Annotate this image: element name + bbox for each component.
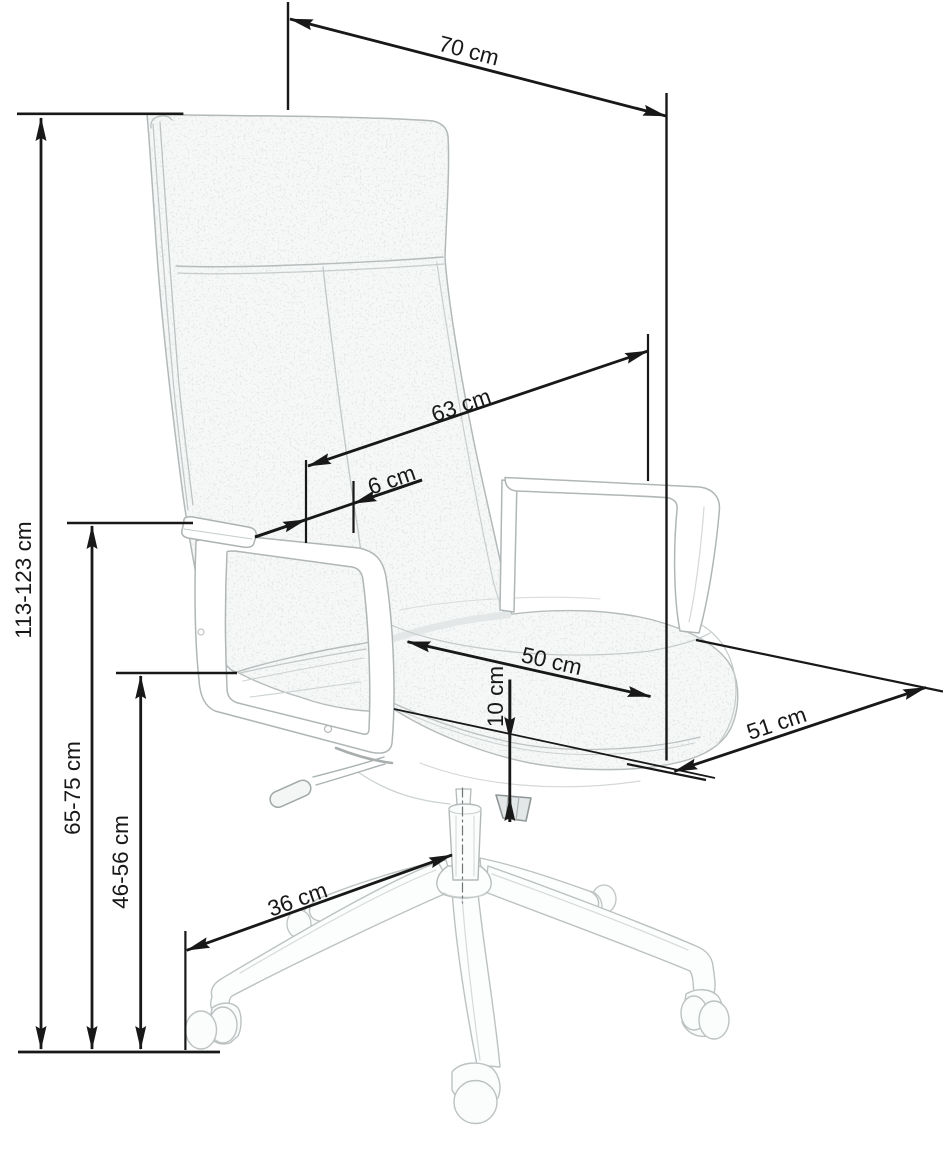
svg-text:10 cm: 10 cm [483,666,508,727]
svg-text:65-75 cm: 65-75 cm [60,741,85,835]
svg-text:113-123 cm: 113-123 cm [11,521,36,638]
svg-text:46-56 cm: 46-56 cm [108,815,133,909]
